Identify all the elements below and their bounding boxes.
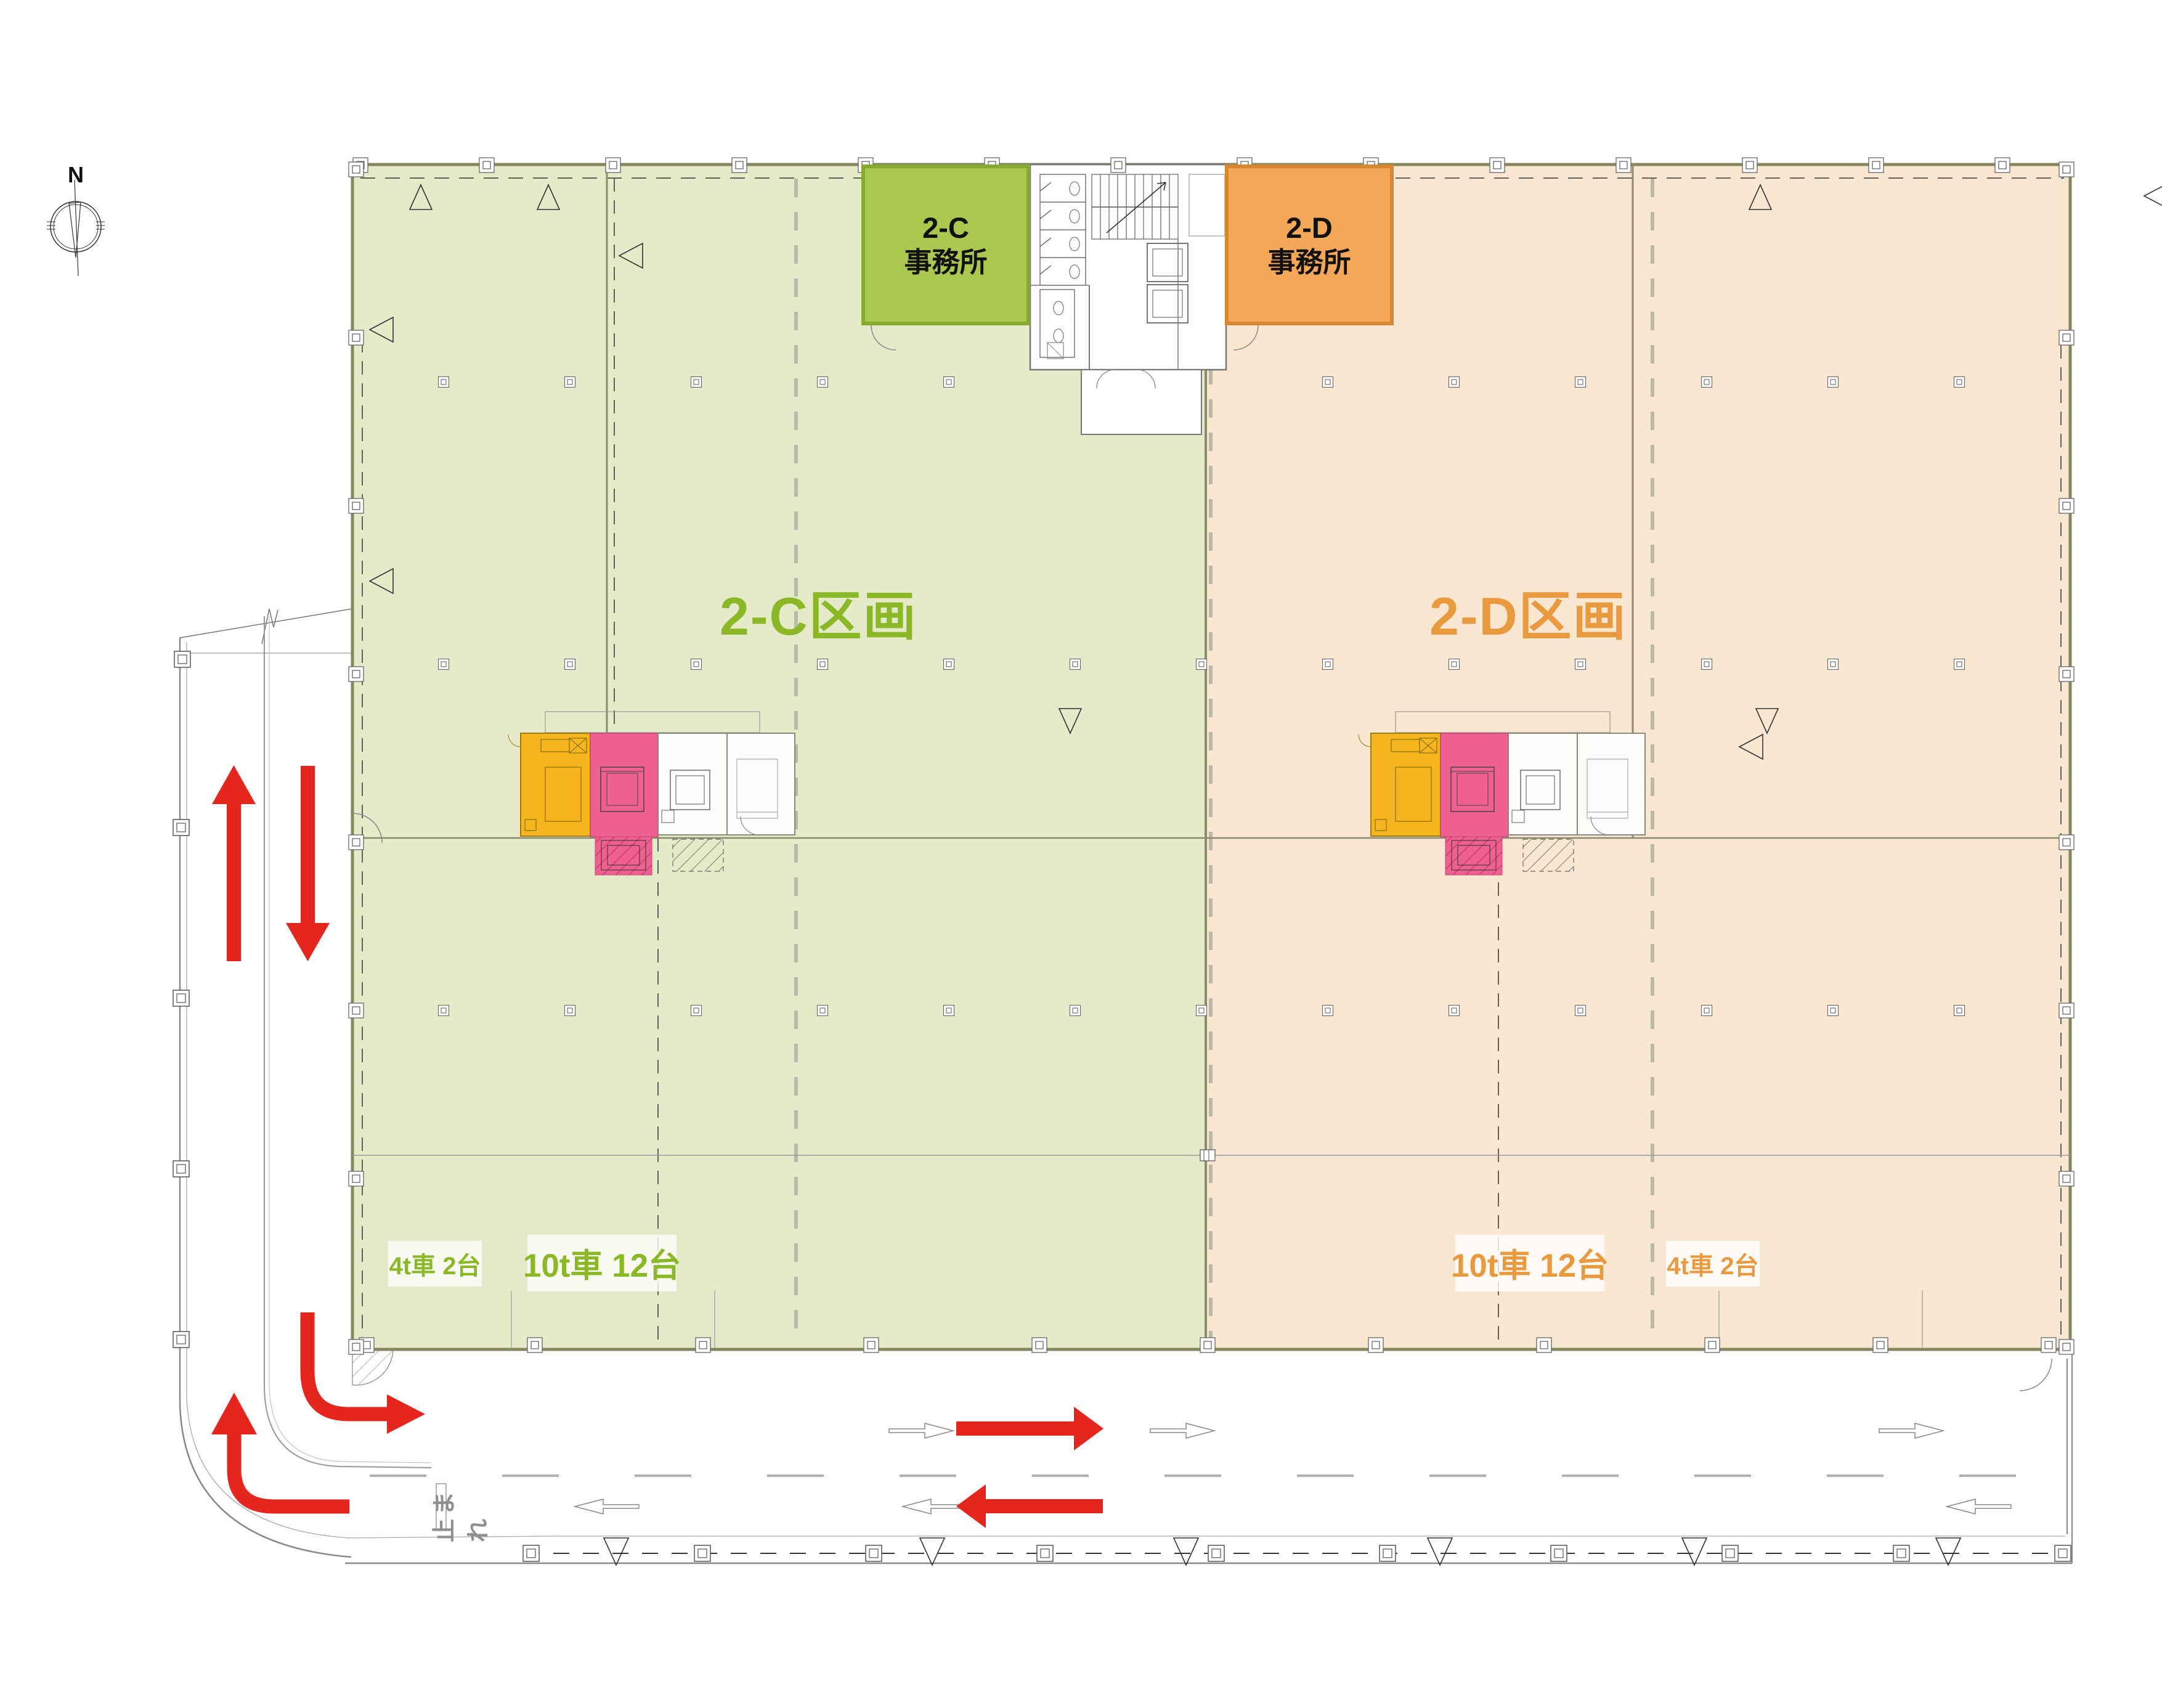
parking-label-2c-10t: 10t車 12台 xyxy=(527,1235,677,1291)
office-box-2d: 2-D 事務所 xyxy=(1225,165,1394,325)
lift-pit-hatch xyxy=(595,837,652,875)
stop-road-marking: 止まれ xyxy=(429,1474,489,1542)
lane-dashes xyxy=(370,1474,2016,1477)
hatched-pit xyxy=(673,839,723,871)
office-2d-line2: 事務所 xyxy=(1267,246,1351,279)
office-2c-line2: 事務所 xyxy=(904,246,987,279)
road-marking-arrows xyxy=(575,1423,2011,1514)
elevator-room-1 xyxy=(658,733,727,835)
floor-plan-canvas: N 2-C 事務所 2-D 事務所 2-C区画 2-D区画 4t車 2台 10t… xyxy=(0,0,2162,1708)
parking-label-2d-10t: 10t車 12台 xyxy=(1455,1235,1604,1291)
parking-label-2d-4t: 4t車 2台 xyxy=(1666,1241,1760,1287)
parking-label-2c-4t: 4t車 2台 xyxy=(388,1241,482,1287)
office-2d-line1: 2-D xyxy=(1286,211,1333,245)
flow-arrow-enter-head xyxy=(211,1393,257,1434)
flow-arrow-right xyxy=(956,1407,1103,1450)
flow-arrow-left xyxy=(956,1484,1103,1528)
boundary-stair-mark xyxy=(1200,1150,1215,1161)
zone-label-2d: 2-D区画 xyxy=(1429,573,1627,650)
site-boundary-left xyxy=(180,638,351,1557)
flow-arrow-up xyxy=(212,765,256,961)
zone-label-2c: 2-C区画 xyxy=(720,573,917,650)
flow-arrow-exit-head xyxy=(387,1394,425,1434)
site-boundary-right xyxy=(2067,1354,2072,1563)
office-box-2c: 2-C 事務所 xyxy=(861,165,1030,325)
machine-room-yellow xyxy=(521,733,590,836)
compass-icon: N xyxy=(47,162,105,276)
plan-drawing: N xyxy=(0,0,2162,1708)
compass-north-label: N xyxy=(68,162,84,187)
flow-arrow-down xyxy=(286,766,330,961)
office-2c-line1: 2-C xyxy=(922,211,969,245)
